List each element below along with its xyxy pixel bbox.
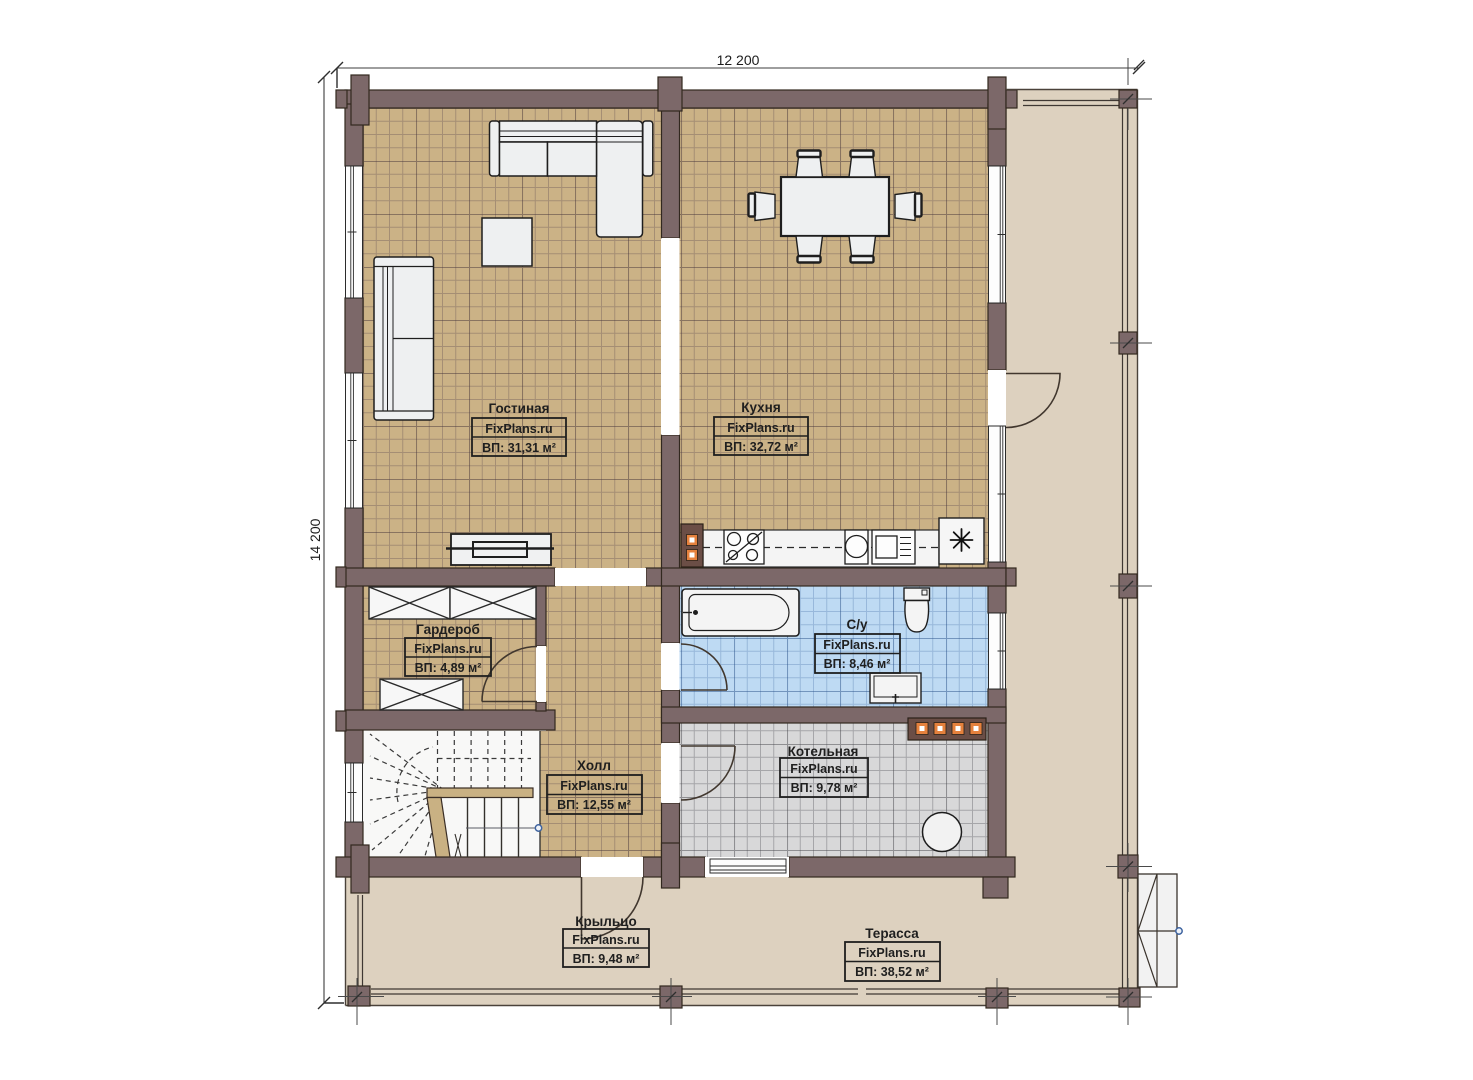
svg-text:FixPlans.ru: FixPlans.ru: [414, 642, 481, 656]
svg-text:Котельная: Котельная: [788, 744, 859, 759]
svg-text:Крыльцо: Крыльцо: [575, 914, 636, 929]
svg-text:ВП: 12,55 м²: ВП: 12,55 м²: [557, 798, 631, 812]
svg-text:FixPlans.ru: FixPlans.ru: [823, 638, 890, 652]
svg-text:ВП: 32,72 м²: ВП: 32,72 м²: [724, 440, 798, 454]
svg-text:FixPlans.ru: FixPlans.ru: [485, 422, 552, 436]
svg-text:Холл: Холл: [577, 758, 611, 773]
svg-text:ВП: 9,78 м²: ВП: 9,78 м²: [791, 781, 858, 795]
svg-text:12 200: 12 200: [717, 52, 760, 68]
svg-text:ВП: 38,52 м²: ВП: 38,52 м²: [855, 965, 929, 979]
svg-text:Терасса: Терасса: [865, 926, 919, 941]
svg-text:Гардероб: Гардероб: [416, 622, 480, 637]
svg-text:FixPlans.ru: FixPlans.ru: [727, 421, 794, 435]
svg-text:FixPlans.ru: FixPlans.ru: [572, 933, 639, 947]
svg-text:Гостиная: Гостиная: [488, 401, 549, 416]
svg-text:FixPlans.ru: FixPlans.ru: [560, 779, 627, 793]
svg-text:ВП: 31,31 м²: ВП: 31,31 м²: [482, 441, 556, 455]
svg-text:ВП: 9,48 м²: ВП: 9,48 м²: [573, 952, 640, 966]
svg-text:FixPlans.ru: FixPlans.ru: [858, 946, 925, 960]
svg-text:14 200: 14 200: [307, 518, 323, 561]
svg-text:Кухня: Кухня: [741, 400, 780, 415]
svg-text:С/у: С/у: [846, 617, 868, 632]
svg-text:ВП: 8,46 м²: ВП: 8,46 м²: [824, 657, 891, 671]
svg-text:FixPlans.ru: FixPlans.ru: [790, 762, 857, 776]
svg-text:ВП: 4,89 м²: ВП: 4,89 м²: [415, 661, 482, 675]
